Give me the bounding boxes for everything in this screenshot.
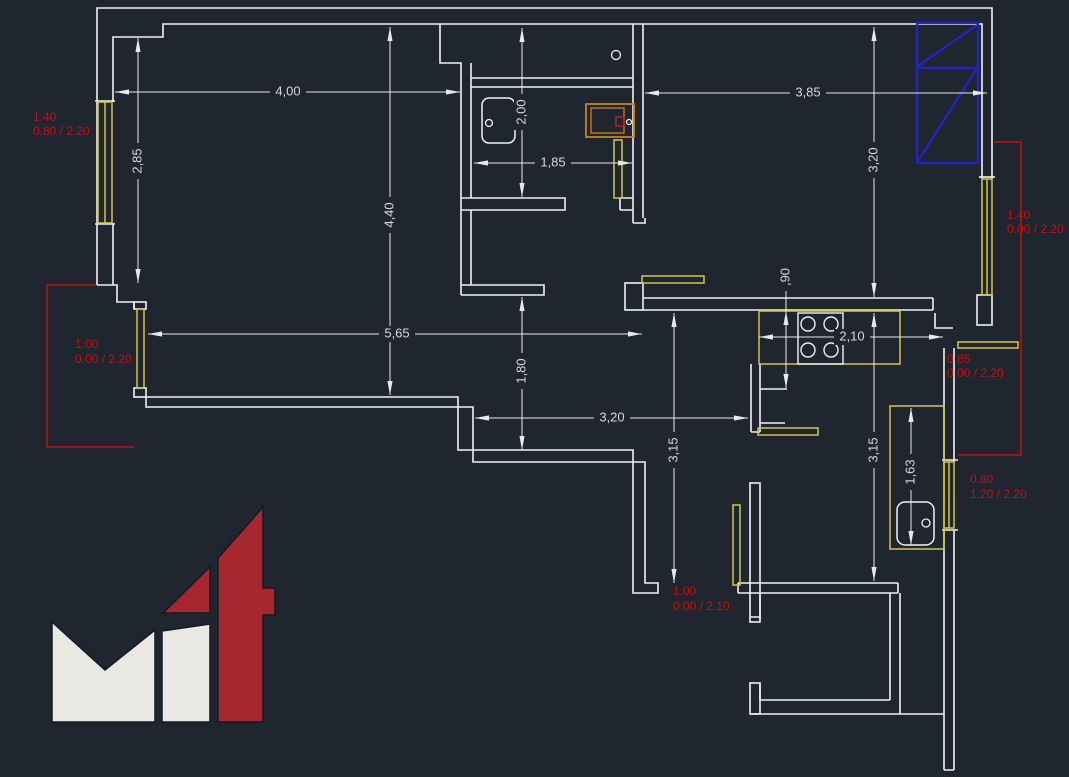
dim-text-room2-height: 3,20 — [865, 147, 880, 172]
label-text: 1.40 — [33, 110, 57, 124]
dim-room1-height: 2,85 — [129, 143, 146, 179]
label-text: 1.00 — [673, 584, 697, 598]
dim-text-hall-height-left: 3,15 — [665, 437, 680, 462]
dim-text-kitchen-width: 2,10 — [839, 328, 864, 343]
dim-kitchen-width: 2,10 — [834, 328, 870, 345]
label-text: 0.00 / 2.20 — [947, 366, 1004, 380]
dim-text-bath-depth: 2,00 — [513, 99, 528, 124]
label-text: 1.40 — [1007, 208, 1031, 222]
dim-text-bath-width: 1,85 — [540, 154, 565, 169]
label-text: 1.20 / 2.20 — [970, 487, 1027, 501]
dim-text-room1-width: 4,00 — [275, 83, 300, 98]
dim-hall-width: 3,20 — [594, 409, 630, 426]
drawing-background — [0, 0, 1069, 777]
label-text: 0.80 / 2.20 — [33, 124, 90, 138]
dim-room2-height: 3,20 — [865, 142, 882, 178]
dim-kitchen-clearance: ,90 — [777, 263, 794, 291]
dim-living-width: 5,65 — [379, 325, 415, 342]
dim-text-room1-height: 2,85 — [129, 148, 144, 173]
label-text: 1.00 — [75, 337, 99, 351]
dim-hall-height-right: 3,15 — [865, 432, 882, 468]
label-text: 0.85 — [947, 352, 971, 366]
label-text: 0.00 / 2.20 — [1007, 222, 1064, 236]
dim-text-kitchen-clearance: ,90 — [777, 268, 792, 286]
dim-room2-width: 3,85 — [790, 84, 826, 101]
dim-bath-depth: 2,00 — [513, 94, 530, 130]
dim-text-hall-width: 3,20 — [599, 409, 624, 424]
dim-text-niche-height: 1,80 — [513, 358, 528, 383]
dim-bath-width: 1,85 — [535, 154, 571, 171]
dim-counter-length: 1,63 — [902, 454, 919, 490]
logo-i-stem — [162, 624, 210, 722]
label-text: 0.00 / 2.20 — [75, 352, 132, 366]
dim-text-room1-depth: 4,40 — [381, 202, 396, 227]
cad-viewport: 4,00 1,85 3,85 2,10 5,65 3,20 2,85 4,40 — [0, 0, 1069, 777]
label-text: 0.00 / 2.10 — [673, 599, 730, 613]
dim-text-living-width: 5,65 — [384, 325, 409, 340]
dim-text-hall-height-right: 3,15 — [865, 437, 880, 462]
dim-niche-height: 1,80 — [513, 353, 530, 389]
label-text: 0.80 — [970, 472, 994, 486]
dim-text-room2-width: 3,85 — [795, 84, 820, 99]
dim-hall-height-left: 3,15 — [665, 432, 682, 468]
dim-text-counter-length: 1,63 — [902, 459, 917, 484]
floor-plan-canvas: 4,00 1,85 3,85 2,10 5,65 3,20 2,85 4,40 — [0, 0, 1069, 777]
dim-room1-width: 4,00 — [270, 83, 306, 100]
dim-room1-depth: 4,40 — [381, 197, 398, 233]
